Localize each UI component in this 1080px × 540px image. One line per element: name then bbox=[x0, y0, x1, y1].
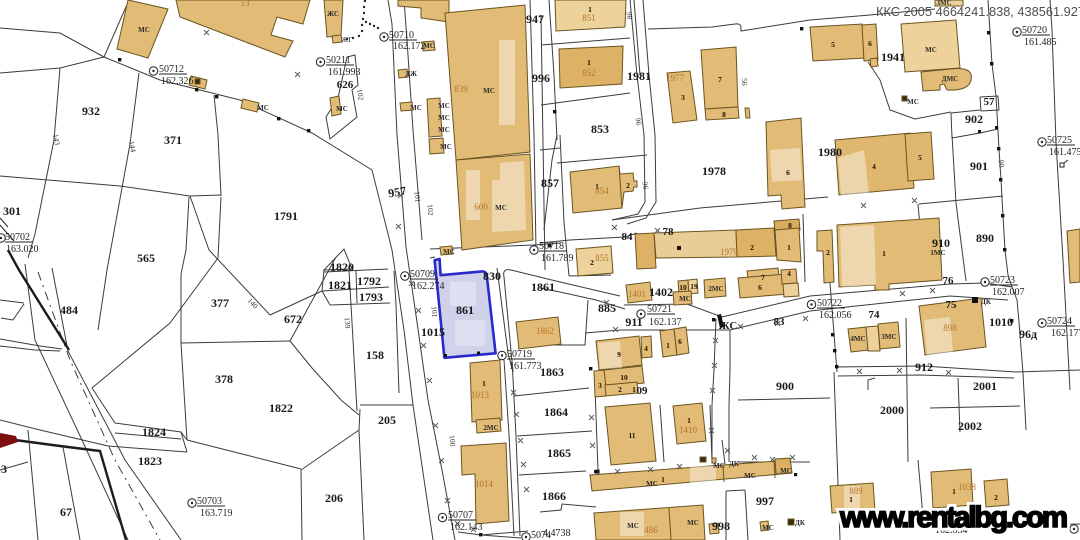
svg-text:161.789: 161.789 bbox=[541, 253, 574, 264]
svg-text:901: 901 bbox=[970, 159, 988, 173]
svg-text:50722: 50722 bbox=[817, 298, 842, 309]
svg-text:161.475: 161.475 bbox=[1049, 147, 1080, 158]
svg-text:161.993: 161.993 bbox=[328, 67, 361, 78]
svg-text:56: 56 bbox=[740, 78, 749, 86]
svg-text:ЖС: ЖС bbox=[327, 10, 339, 18]
svg-text:7: 7 bbox=[718, 75, 722, 84]
svg-text:50723: 50723 bbox=[990, 275, 1015, 286]
svg-text:484: 484 bbox=[60, 303, 78, 317]
svg-text:4.4738: 4.4738 bbox=[543, 528, 571, 539]
svg-text:1038: 1038 bbox=[958, 482, 977, 492]
svg-text:76: 76 bbox=[943, 275, 955, 287]
svg-text:371: 371 bbox=[164, 133, 182, 147]
svg-text:900: 900 bbox=[776, 379, 794, 393]
svg-text:162.274: 162.274 bbox=[412, 281, 445, 292]
svg-text:4: 4 bbox=[787, 269, 791, 278]
svg-text:1: 1 bbox=[666, 341, 670, 350]
svg-text:ДК: ДК bbox=[795, 519, 806, 527]
svg-text:997: 997 bbox=[756, 494, 774, 508]
svg-text:162.056: 162.056 bbox=[819, 310, 852, 321]
svg-text:1980: 1980 bbox=[818, 145, 842, 159]
svg-text:МС: МС bbox=[483, 87, 495, 95]
svg-text:102: 102 bbox=[355, 88, 366, 101]
svg-text:ДК: ДК bbox=[981, 298, 992, 306]
svg-text:МС: МС bbox=[687, 519, 699, 527]
svg-text:1: 1 bbox=[482, 379, 486, 388]
svg-text:ДЖ: ДЖ bbox=[405, 70, 417, 78]
svg-text:830: 830 bbox=[483, 269, 501, 283]
svg-text:2000: 2000 bbox=[880, 403, 904, 417]
svg-text:2: 2 bbox=[590, 258, 594, 267]
svg-text:1МС: 1МС bbox=[930, 249, 945, 257]
svg-text:301: 301 bbox=[3, 204, 21, 218]
svg-text:МС: МС bbox=[907, 98, 919, 106]
svg-text:898: 898 bbox=[943, 323, 957, 333]
svg-text:74: 74 bbox=[869, 309, 881, 321]
svg-text:6: 6 bbox=[678, 337, 682, 346]
svg-text:163.020: 163.020 bbox=[6, 244, 39, 255]
svg-text:101: 101 bbox=[430, 306, 440, 318]
svg-text:8: 8 bbox=[722, 110, 726, 119]
svg-text:1: 1 bbox=[661, 475, 665, 484]
svg-text:100: 100 bbox=[448, 435, 458, 447]
svg-text:1941: 1941 bbox=[881, 50, 905, 64]
svg-text:1863: 1863 bbox=[540, 365, 564, 379]
svg-text:1865: 1865 bbox=[547, 446, 571, 460]
svg-text:2: 2 bbox=[826, 248, 830, 257]
svg-text:50719: 50719 bbox=[507, 349, 532, 360]
svg-text:902: 902 bbox=[965, 112, 983, 126]
svg-text:ЖГ: ЖГ bbox=[341, 35, 353, 44]
svg-text:6: 6 bbox=[868, 39, 872, 48]
svg-text:1862: 1862 bbox=[536, 326, 554, 336]
svg-text:1: 1 bbox=[687, 416, 691, 425]
svg-text:162.326: 162.326 bbox=[161, 76, 194, 87]
svg-text:78: 78 bbox=[663, 226, 675, 238]
svg-text:1978: 1978 bbox=[702, 164, 726, 178]
svg-text:МС: МС bbox=[627, 522, 639, 530]
svg-text:1793: 1793 bbox=[359, 290, 383, 304]
svg-text:ДК: ДК bbox=[729, 460, 740, 468]
svg-text:90: 90 bbox=[996, 159, 1006, 168]
svg-text:162.177: 162.177 bbox=[1051, 328, 1080, 339]
svg-text:МС: МС bbox=[679, 295, 691, 303]
svg-text:851: 851 bbox=[582, 13, 596, 23]
svg-text:13: 13 bbox=[241, 0, 251, 8]
svg-text:10: 10 bbox=[679, 283, 687, 292]
svg-text:162.172: 162.172 bbox=[393, 41, 426, 52]
svg-text:1: 1 bbox=[632, 385, 636, 394]
svg-text:163.719: 163.719 bbox=[200, 508, 233, 519]
svg-text:50725: 50725 bbox=[1047, 135, 1072, 146]
svg-text:486: 486 bbox=[644, 525, 658, 535]
svg-text:1: 1 bbox=[787, 243, 791, 252]
svg-text:7: 7 bbox=[761, 273, 765, 282]
svg-text:09: 09 bbox=[637, 385, 649, 397]
svg-text:890: 890 bbox=[976, 231, 994, 245]
svg-text:1792: 1792 bbox=[357, 274, 381, 288]
svg-text:947: 947 bbox=[526, 12, 544, 26]
svg-text:6: 6 bbox=[786, 168, 790, 177]
svg-text:84: 84 bbox=[622, 231, 634, 243]
svg-text:102: 102 bbox=[426, 204, 436, 216]
svg-text:996: 996 bbox=[532, 71, 550, 85]
svg-text:МС: МС bbox=[762, 524, 774, 532]
svg-text:МС: МС bbox=[410, 104, 422, 112]
svg-text:МС: МС bbox=[443, 248, 455, 256]
svg-text:1: 1 bbox=[882, 249, 886, 258]
svg-text:600: 600 bbox=[474, 202, 488, 212]
svg-text:1979: 1979 bbox=[720, 247, 739, 257]
svg-text:1015: 1015 bbox=[421, 325, 445, 339]
svg-text:378: 378 bbox=[215, 372, 233, 386]
svg-text:161.485: 161.485 bbox=[1024, 37, 1057, 48]
svg-text:1791: 1791 bbox=[274, 209, 298, 223]
svg-text:626: 626 bbox=[337, 79, 354, 91]
svg-text:998: 998 bbox=[712, 519, 730, 533]
svg-text:861: 861 bbox=[456, 303, 474, 317]
svg-text:1824: 1824 bbox=[142, 425, 166, 439]
svg-text:4: 4 bbox=[644, 344, 648, 353]
svg-text:1010: 1010 bbox=[989, 315, 1013, 329]
svg-text:57: 57 bbox=[984, 96, 996, 108]
svg-text:3: 3 bbox=[1, 462, 7, 476]
svg-text:50702: 50702 bbox=[5, 232, 30, 243]
svg-text:2МС: 2МС bbox=[708, 285, 723, 293]
svg-text:2: 2 bbox=[750, 243, 754, 252]
svg-text:11: 11 bbox=[628, 431, 635, 440]
svg-text:ККС 2005 4664241.838, 438561.9: ККС 2005 4664241.838, 438561.927 bbox=[876, 4, 1080, 19]
svg-text:50721: 50721 bbox=[647, 304, 672, 315]
svg-text:206: 206 bbox=[325, 491, 343, 505]
svg-text:МС: МС bbox=[780, 467, 792, 475]
svg-text:565: 565 bbox=[137, 251, 155, 265]
svg-text:50703: 50703 bbox=[197, 496, 222, 507]
svg-text:МС: МС bbox=[438, 102, 450, 110]
svg-text:1: 1 bbox=[587, 58, 591, 67]
svg-text:2: 2 bbox=[626, 181, 630, 190]
svg-text:МС: МС bbox=[646, 480, 658, 488]
svg-text:3: 3 bbox=[681, 93, 685, 102]
svg-text:1861: 1861 bbox=[531, 280, 555, 294]
svg-text:1866: 1866 bbox=[542, 489, 566, 503]
svg-text:932: 932 bbox=[82, 104, 100, 118]
svg-text:1410: 1410 bbox=[679, 425, 698, 435]
svg-text:4: 4 bbox=[872, 162, 876, 171]
svg-text:1: 1 bbox=[952, 487, 956, 496]
svg-text:839: 839 bbox=[454, 84, 468, 94]
svg-text:162.137: 162.137 bbox=[649, 317, 682, 328]
svg-text:МС: МС bbox=[438, 114, 450, 122]
svg-text:МС: МС bbox=[438, 126, 450, 134]
svg-text:МС: МС bbox=[713, 462, 725, 470]
svg-text:1014: 1014 bbox=[475, 479, 494, 489]
svg-text:4МС: 4МС bbox=[850, 335, 865, 343]
svg-text:1402: 1402 bbox=[649, 285, 673, 299]
svg-text:162.143: 162.143 bbox=[450, 522, 483, 533]
svg-text:857: 857 bbox=[541, 176, 559, 190]
svg-text:855: 855 bbox=[595, 253, 609, 263]
svg-text:161.773: 161.773 bbox=[509, 361, 542, 372]
svg-text:ДМС: ДМС bbox=[942, 75, 958, 83]
svg-text:МС: МС bbox=[336, 105, 348, 113]
svg-text:МС: МС bbox=[257, 104, 269, 112]
svg-text:50709: 50709 bbox=[410, 269, 435, 280]
svg-text:912: 912 bbox=[915, 360, 933, 374]
svg-text:377: 377 bbox=[211, 296, 229, 310]
svg-text:50707: 50707 bbox=[448, 510, 473, 521]
svg-text:5: 5 bbox=[831, 40, 835, 49]
svg-text:2МС: 2МС bbox=[483, 424, 498, 432]
svg-text:50724: 50724 bbox=[1047, 316, 1072, 327]
svg-text:1864: 1864 bbox=[544, 405, 568, 419]
svg-text:2: 2 bbox=[618, 385, 622, 394]
svg-text:67: 67 bbox=[60, 505, 72, 519]
svg-text:1013: 1013 bbox=[471, 390, 490, 400]
svg-text:5: 5 bbox=[918, 153, 922, 162]
svg-text:1823: 1823 bbox=[138, 454, 162, 468]
svg-text:50712: 50712 bbox=[159, 64, 184, 75]
svg-text:www.rentalbg.com: www.rentalbg.com bbox=[839, 501, 1067, 534]
svg-text:158: 158 bbox=[366, 348, 384, 362]
svg-text:672: 672 bbox=[284, 312, 302, 326]
svg-text:96д: 96д bbox=[1019, 327, 1037, 341]
svg-text:19: 19 bbox=[690, 282, 698, 291]
svg-text:854: 854 bbox=[595, 186, 609, 196]
svg-text:162.007: 162.007 bbox=[992, 287, 1025, 298]
svg-text:2002: 2002 bbox=[958, 419, 982, 433]
svg-text:3: 3 bbox=[598, 381, 602, 390]
svg-text:1401: 1401 bbox=[628, 289, 646, 299]
svg-text:853: 853 bbox=[591, 122, 609, 136]
svg-text:139: 139 bbox=[343, 317, 353, 329]
svg-text:МС: МС bbox=[138, 26, 150, 34]
svg-text:910: 910 bbox=[932, 236, 950, 250]
svg-text:50718: 50718 bbox=[539, 241, 564, 252]
svg-text:1821: 1821 bbox=[328, 278, 352, 292]
svg-text:2001: 2001 bbox=[973, 379, 997, 393]
svg-text:50710: 50710 bbox=[389, 30, 414, 41]
svg-text:9: 9 bbox=[617, 350, 621, 359]
svg-text:1820: 1820 bbox=[330, 260, 354, 274]
svg-text:МС: МС bbox=[744, 472, 756, 480]
svg-text:8: 8 bbox=[788, 221, 792, 230]
svg-text:50720: 50720 bbox=[1022, 25, 1047, 36]
svg-text:205: 205 bbox=[378, 413, 396, 427]
svg-text:3МС: 3МС bbox=[881, 333, 896, 341]
svg-text:852: 852 bbox=[582, 68, 596, 78]
svg-text:75: 75 bbox=[946, 299, 958, 311]
svg-text:1977: 1977 bbox=[666, 73, 685, 83]
svg-text:1822: 1822 bbox=[269, 401, 293, 415]
svg-text:6: 6 bbox=[758, 283, 762, 292]
svg-text:МС: МС bbox=[440, 143, 452, 151]
svg-text:МС: МС bbox=[925, 46, 937, 54]
svg-text:50211: 50211 bbox=[326, 55, 351, 66]
svg-text:МС: МС bbox=[495, 204, 507, 212]
svg-text:101: 101 bbox=[413, 191, 423, 203]
svg-text:1981: 1981 bbox=[627, 69, 651, 83]
svg-text:10: 10 bbox=[620, 373, 628, 382]
